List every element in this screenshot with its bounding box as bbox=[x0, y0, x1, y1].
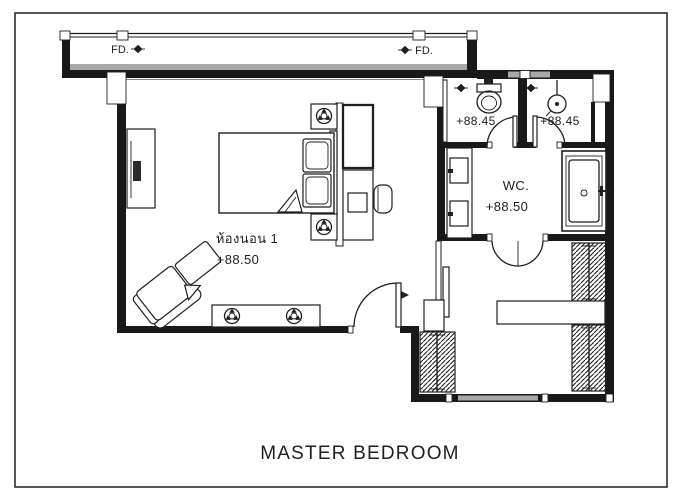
column-marker bbox=[117, 31, 128, 40]
band-glazing bbox=[70, 64, 467, 70]
shower-east-wall bbox=[591, 102, 595, 142]
band-left-cap bbox=[62, 36, 70, 78]
column-marker bbox=[413, 31, 425, 40]
faucet-icon bbox=[448, 169, 453, 173]
closet-counter bbox=[497, 301, 605, 324]
tv-icon bbox=[133, 161, 141, 181]
toilet-west-wall bbox=[443, 80, 447, 142]
toilet-shower-partition bbox=[518, 79, 527, 145]
column-mid bbox=[424, 76, 443, 107]
door-jamb bbox=[543, 234, 548, 241]
wall-jamb bbox=[542, 394, 548, 402]
vanity bbox=[447, 148, 472, 238]
wc-name-label: WC. bbox=[503, 178, 529, 193]
band-right-cap bbox=[467, 36, 477, 78]
tub-faucet-icon bbox=[600, 186, 603, 196]
bedroom-door-leaf bbox=[396, 283, 401, 327]
pillow bbox=[303, 174, 331, 207]
faucet-icon bbox=[448, 212, 453, 216]
fd-label-left: FD. bbox=[111, 44, 129, 56]
toilet-level-label: +88.45 bbox=[456, 114, 495, 128]
drawing-caption: MASTER BEDROOM bbox=[260, 443, 459, 464]
desk-hutch bbox=[343, 105, 373, 168]
column-left bbox=[107, 72, 126, 104]
nightstand bbox=[311, 104, 337, 129]
smallrooms-bottom-wall-c bbox=[562, 142, 607, 148]
nightstand bbox=[311, 214, 337, 240]
column-marker bbox=[467, 31, 477, 40]
shower-door-leaf bbox=[533, 116, 537, 147]
corner-marker bbox=[606, 394, 613, 402]
wc-bottom-wall-b bbox=[543, 234, 607, 241]
floor-plan: FD. FD. +88.45 +88.45 WC. +88.50 ห้องนอน… bbox=[0, 0, 682, 502]
bathtub bbox=[562, 151, 610, 231]
shower-level-label: +88.45 bbox=[540, 114, 579, 128]
door-jamb bbox=[348, 326, 353, 333]
tv-cabinet bbox=[127, 129, 155, 208]
desk-keyboard bbox=[348, 193, 367, 212]
left-wall bbox=[117, 78, 126, 332]
closet-cabinet bbox=[424, 300, 444, 331]
column-right bbox=[593, 74, 610, 102]
fd-label-right: FD. bbox=[415, 45, 433, 57]
toilet-door-leaf bbox=[513, 116, 517, 147]
column-marker bbox=[60, 31, 70, 40]
bedroom-level-label: +88.50 bbox=[217, 252, 260, 267]
hall-west-wall bbox=[436, 241, 441, 302]
door-jamb bbox=[557, 142, 562, 148]
pillow bbox=[303, 139, 331, 172]
bedroom-name-label: ห้องนอน 1 bbox=[216, 231, 278, 246]
closet-bottom-wall-gray bbox=[458, 396, 538, 401]
door-jamb bbox=[487, 234, 492, 241]
bed bbox=[219, 133, 334, 213]
smallrooms-bottom-wall-a bbox=[443, 142, 487, 148]
desk-chair bbox=[374, 185, 392, 213]
console-table bbox=[212, 305, 320, 327]
floor-plan-page: FD. FD. +88.45 +88.45 WC. +88.50 ห้องนอน… bbox=[0, 0, 682, 502]
wall-jamb bbox=[446, 394, 452, 402]
wc-level-label: +88.50 bbox=[486, 199, 529, 214]
wall-jamb bbox=[520, 71, 530, 79]
closet-left-wall bbox=[411, 330, 419, 402]
